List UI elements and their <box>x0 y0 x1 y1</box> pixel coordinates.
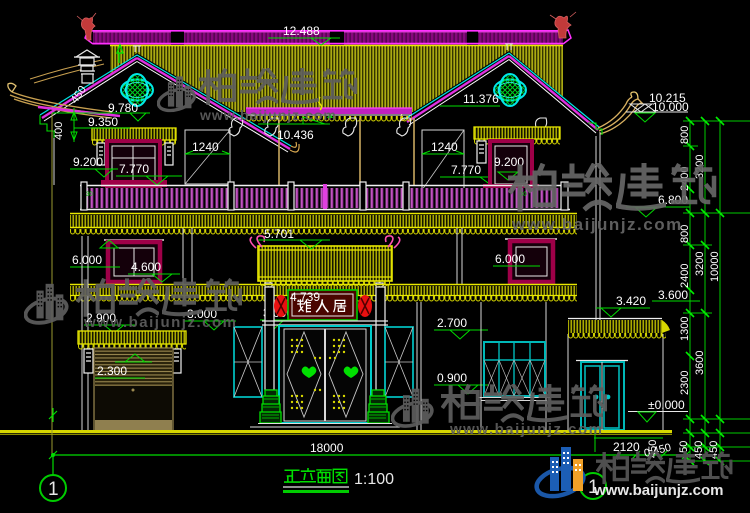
svg-text:10.436: 10.436 <box>277 128 314 142</box>
svg-text:2120: 2120 <box>613 440 640 454</box>
svg-text:0.900: 0.900 <box>437 371 467 385</box>
svg-text:2.700: 2.700 <box>437 316 467 330</box>
svg-text:10000: 10000 <box>709 251 721 282</box>
svg-text:9.200: 9.200 <box>73 155 103 169</box>
svg-text:2300: 2300 <box>679 371 691 395</box>
svg-text:www.baijunjz.com: www.baijunjz.com <box>83 314 237 331</box>
svg-text:±0.000: ±0.000 <box>648 398 685 412</box>
svg-text:400: 400 <box>53 122 65 140</box>
svg-text:3.600: 3.600 <box>658 288 688 302</box>
svg-text:7.770: 7.770 <box>451 163 481 177</box>
svg-text:4.600: 4.600 <box>131 260 161 274</box>
svg-text:30: 30 <box>86 192 93 198</box>
svg-text:www.baijunjz.com: www.baijunjz.com <box>199 107 337 123</box>
svg-text:9.350: 9.350 <box>88 115 118 129</box>
svg-text:3.420: 3.420 <box>616 294 646 308</box>
svg-text:www.baijunjz.com: www.baijunjz.com <box>593 482 723 499</box>
svg-text:5.701: 5.701 <box>264 227 294 241</box>
svg-text:4.739: 4.739 <box>290 290 320 304</box>
svg-text:2.300: 2.300 <box>97 364 127 378</box>
svg-text:www.baijunjz.com: www.baijunjz.com <box>511 215 683 234</box>
svg-text:1300: 1300 <box>679 317 691 341</box>
svg-text:11.376: 11.376 <box>463 92 499 106</box>
svg-text:1240: 1240 <box>431 140 458 154</box>
svg-text:12.488: 12.488 <box>283 24 320 38</box>
svg-text:www.baijunjz.com: www.baijunjz.com <box>449 421 603 438</box>
svg-text:1:100: 1:100 <box>354 471 394 488</box>
svg-text:3600: 3600 <box>694 351 706 375</box>
svg-text:6.000: 6.000 <box>72 253 102 267</box>
svg-text:1240: 1240 <box>192 140 219 154</box>
svg-text:800: 800 <box>679 126 691 144</box>
svg-text:6.000: 6.000 <box>495 252 525 266</box>
svg-text:2400: 2400 <box>679 264 691 288</box>
svg-text:7.770: 7.770 <box>119 162 149 176</box>
svg-text:1: 1 <box>48 479 59 500</box>
svg-text:18000: 18000 <box>310 441 344 455</box>
svg-text:3200: 3200 <box>694 252 706 276</box>
